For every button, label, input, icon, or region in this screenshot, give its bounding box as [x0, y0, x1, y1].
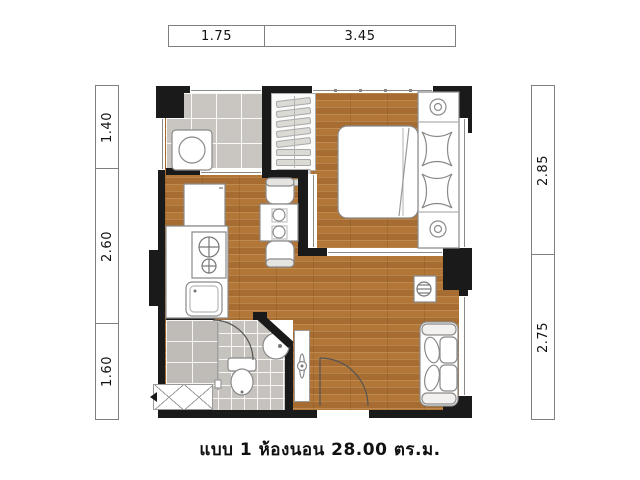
dimension-bar-top: 1.75 3.45 [168, 25, 456, 47]
dim-left-3-label: 1.60 [100, 356, 115, 387]
chair-icon [266, 241, 294, 267]
sofa-icon [420, 322, 458, 406]
dim-right-1-label: 2.85 [536, 155, 551, 186]
dim-right-2: 2.75 [531, 254, 555, 420]
dim-top-1-label: 1.75 [201, 29, 232, 44]
refrigerator-icon [184, 184, 225, 226]
dim-top-2-label: 3.45 [345, 29, 376, 44]
console-ornament [298, 354, 307, 378]
shower-divider [215, 322, 221, 390]
dimension-bar-left: 1.40 2.60 1.60 [95, 85, 119, 420]
dimension-bar-right: 2.85 2.75 [531, 85, 555, 420]
dim-left-2-label: 2.60 [100, 231, 115, 262]
dim-left-2: 2.60 [95, 168, 119, 324]
dim-left-1: 1.40 [95, 85, 119, 169]
washing-machine-icon [172, 130, 212, 170]
two-burner-stove-icon [192, 232, 226, 278]
toilet-icon [228, 358, 256, 395]
dining-table-icon [260, 204, 298, 241]
kitchen-sink-icon [186, 282, 222, 316]
dim-top-2: 3.45 [264, 25, 456, 47]
dim-left-3: 1.60 [95, 323, 119, 420]
side-table-lamp-icon [414, 276, 436, 302]
chair-icon [266, 178, 294, 204]
dim-right-2-label: 2.75 [536, 322, 551, 353]
floor-plan-page: 1.75 3.45 1.40 2.60 1.60 2.85 2.75 [0, 0, 640, 480]
furniture-layer [156, 84, 472, 420]
dim-top-1: 1.75 [168, 25, 265, 47]
dim-left-1-label: 1.40 [100, 112, 115, 143]
dim-right-1: 2.85 [531, 85, 555, 255]
double-bed-icon [338, 92, 459, 248]
floor-plan [156, 84, 472, 420]
plan-caption: แบบ 1 ห้องนอน 28.00 ตร.ม. [0, 436, 640, 463]
